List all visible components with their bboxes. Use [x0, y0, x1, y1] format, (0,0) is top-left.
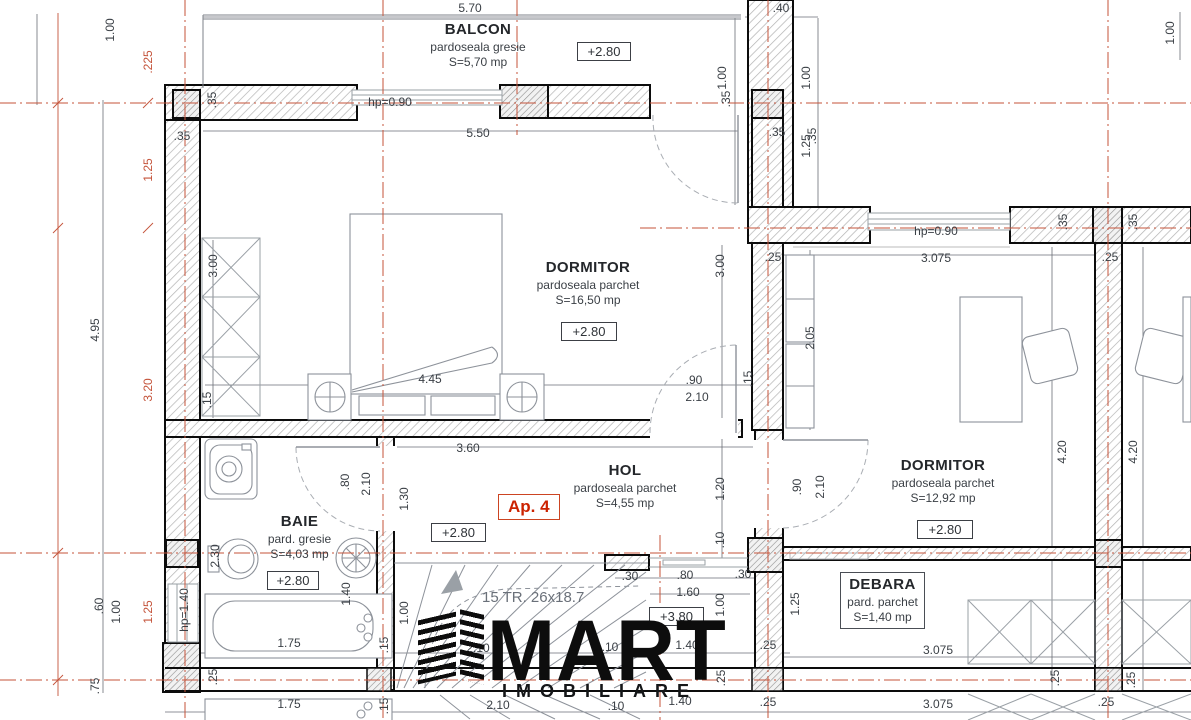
room-label-balcon: BALCON pardoseala gresie S=5,70 mp [378, 20, 578, 71]
dimension-label: 1.75 [277, 636, 300, 650]
room-title: DEBARA [847, 575, 918, 595]
dimension-label: 1.00 [397, 601, 411, 624]
dimension-label: .90 [686, 373, 703, 387]
dimension-label: 3.00 [713, 254, 727, 277]
room-label-hol: HOL pardoseala parchet S=4,55 mp [545, 461, 705, 512]
dimension-label: .35 [1126, 214, 1140, 231]
dimension-label: .25 [1124, 672, 1138, 689]
room-title: HOL [545, 461, 705, 481]
dimension-label: 3.00 [206, 254, 220, 277]
dimension-label: 2.10 [359, 472, 373, 495]
level-badge-dormitor-2: +2.80 [917, 520, 973, 539]
floor-plan: BALCON pardoseala gresie S=5,70 mp +2.80… [0, 0, 1191, 720]
dimension-label: .15 [377, 637, 391, 654]
dimension-label: .75 [88, 678, 102, 695]
dimension-label: 1.00 [1163, 21, 1177, 44]
room-area: S=1,40 mp [847, 610, 918, 626]
dimension-label: 1.25 [788, 592, 802, 615]
room-area: S=5,70 mp [378, 55, 578, 71]
dimension-label: 1.25 [141, 600, 155, 623]
dimension-label: 1.20 [713, 477, 727, 500]
dimension-label: 1.30 [397, 487, 411, 510]
room-floor: pardoseala gresie [378, 40, 578, 56]
room-title: DORMITOR [853, 456, 1033, 476]
dimension-label: .25 [765, 250, 782, 264]
dimension-label: .35 [769, 125, 786, 139]
dimension-label: hp=1.40 [177, 588, 191, 632]
dimension-label: 1.00 [715, 66, 729, 89]
dimension-label: 3.60 [456, 441, 479, 455]
room-label-baie: BAIE pard. gresie S=4,03 mp [227, 512, 372, 563]
room-floor: pard. gresie [227, 532, 372, 548]
room-title: BAIE [227, 512, 372, 532]
apartment-number-badge: Ap. 4 [498, 494, 560, 520]
dimension-label: 1.60 [676, 585, 699, 599]
level-badge-balcon: +2.80 [577, 42, 631, 61]
dimension-label: 2.05 [803, 326, 817, 349]
level-badge-dormitor-1: +2.80 [561, 322, 617, 341]
room-label-dormitor-1: DORMITOR pardoseala parchet S=16,50 mp [488, 258, 688, 309]
dimension-label: .25 [206, 669, 220, 686]
dimension-label: 3.075 [923, 643, 953, 657]
room-floor: pard. parchet [847, 595, 918, 611]
level-badge-hol: +2.80 [431, 523, 486, 542]
dimension-label: .35 [205, 92, 219, 109]
dimension-label: .80 [338, 474, 352, 491]
dimension-label: 4.20 [1126, 440, 1140, 463]
dimension-label: 3.20 [141, 378, 155, 401]
dimension-label: 1.00 [109, 600, 123, 623]
dimension-label: .25 [760, 638, 777, 652]
room-label-dormitor-2: DORMITOR pardoseala parchet S=12,92 mp [853, 456, 1033, 507]
room-label-debara: DEBARA pard. parchet S=1,40 mp [830, 572, 935, 629]
dimension-label: 4.95 [88, 318, 102, 341]
logo-building-icon [460, 609, 484, 685]
dimension-label: 5.70 [458, 1, 481, 15]
level-badge-baie: +2.80 [267, 571, 319, 590]
dimension-label: 3.075 [923, 697, 953, 711]
stair-direction-arrow [441, 570, 463, 594]
dimension-label: .35 [719, 91, 733, 108]
dimension-label: hp=0.90 [368, 95, 412, 109]
room-area: S=4,55 mp [545, 496, 705, 512]
dimension-label: .10 [713, 532, 727, 549]
room-area: S=12,92 mp [853, 491, 1033, 507]
room-area: S=4,03 mp [227, 547, 372, 563]
dimension-label: .15 [200, 392, 214, 409]
dimension-label: 1.00 [103, 18, 117, 41]
dimension-label: .60 [92, 598, 106, 615]
logo-building-icon [418, 612, 456, 685]
dimension-label: .15 [741, 371, 755, 388]
dimension-label: .40 [773, 1, 790, 15]
dimension-label: .80 [677, 568, 694, 582]
room-title: DORMITOR [488, 258, 688, 278]
dimension-label: 1.75 [277, 697, 300, 711]
dimension-label: 1.25 [799, 134, 813, 157]
dimension-label: .25 [1048, 670, 1062, 687]
dimension-label: 2.10 [813, 475, 827, 498]
dimension-label: .25 [1102, 250, 1119, 264]
dimension-label: .15 [377, 698, 391, 715]
room-area: S=16,50 mp [488, 293, 688, 309]
dimension-label: 1.40 [339, 582, 353, 605]
dimension-label: 1.00 [799, 66, 813, 89]
dimension-label: .30 [735, 567, 752, 581]
dimension-label: .225 [141, 50, 155, 73]
dimension-label: 1.25 [141, 158, 155, 181]
dimension-label: .90 [790, 479, 804, 496]
dimension-label: .25 [760, 695, 777, 709]
dimension-label: .30 [622, 569, 639, 583]
dimension-label: .35 [174, 129, 191, 143]
dimension-label: 5.50 [466, 126, 489, 140]
dimension-label: hp=0.90 [914, 224, 958, 238]
dimension-label: .25 [1098, 695, 1115, 709]
room-floor: pardoseala parchet [488, 278, 688, 294]
room-floor: pardoseala parchet [853, 476, 1033, 492]
room-title: BALCON [378, 20, 578, 40]
room-floor: pardoseala parchet [545, 481, 705, 497]
dimension-label: 3.075 [921, 251, 951, 265]
dimension-label: .35 [1056, 214, 1070, 231]
logo-subtext: IMOBILIARE [502, 681, 698, 702]
dimension-label: 2.30 [208, 544, 222, 567]
dimension-label: 4.45 [418, 372, 441, 386]
dimension-label: 4.20 [1055, 440, 1069, 463]
dimension-label: 2.10 [685, 390, 708, 404]
